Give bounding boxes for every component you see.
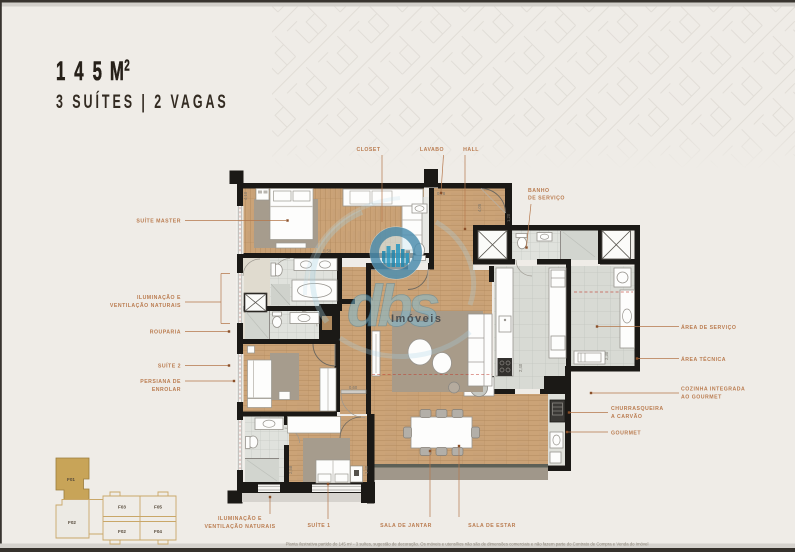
svg-text:PERSIANA DE: PERSIANA DE (140, 379, 181, 385)
svg-text:F05: F05 (154, 505, 162, 510)
svg-text:F01: F01 (67, 477, 75, 482)
svg-text:M: M (110, 56, 124, 86)
svg-text:AO GOURMET: AO GOURMET (681, 395, 722, 401)
svg-text:VENTILAÇÃO NATURAIS: VENTILAÇÃO NATURAIS (204, 523, 275, 530)
svg-text:2,40: 2,40 (518, 363, 523, 372)
svg-text:145: 145 (56, 56, 111, 86)
svg-text:CLOSET: CLOSET (356, 147, 380, 153)
svg-text:SUÍTE MASTER: SUÍTE MASTER (136, 217, 181, 225)
svg-text:VENTILAÇÃO NATURAIS: VENTILAÇÃO NATURAIS (110, 302, 181, 309)
svg-text:SALA DE JANTAR: SALA DE JANTAR (380, 523, 432, 529)
svg-text:4,10: 4,10 (243, 191, 248, 200)
svg-text:3 SUÍTES | 2 VAGAS: 3 SUÍTES | 2 VAGAS (56, 90, 229, 113)
svg-text:4,05: 4,05 (477, 203, 482, 212)
svg-text:1,20: 1,20 (506, 213, 511, 222)
svg-text:F02: F02 (68, 520, 76, 525)
svg-text:SALA DE ESTAR: SALA DE ESTAR (468, 523, 516, 529)
svg-text:HALL: HALL (463, 147, 479, 153)
svg-text:Imóveis: Imóveis (391, 313, 442, 325)
svg-text:dbs: dbs (347, 274, 439, 339)
svg-text:F04: F04 (154, 529, 162, 534)
svg-text:ÁREA TÉCNICA: ÁREA TÉCNICA (681, 355, 726, 363)
svg-text:ENROLAR: ENROLAR (152, 387, 181, 393)
svg-text:2: 2 (124, 56, 130, 74)
svg-text:ILUMINAÇÃO E: ILUMINAÇÃO E (137, 294, 181, 301)
svg-text:CHURRASQUEIRA: CHURRASQUEIRA (611, 406, 664, 412)
svg-text:F03: F03 (118, 505, 126, 510)
svg-text:GOURMET: GOURMET (611, 431, 641, 437)
svg-text:SUÍTE 2: SUÍTE 2 (158, 362, 181, 370)
svg-text:2,58: 2,58 (288, 465, 293, 474)
svg-text:ÁREA DE SERVIÇO: ÁREA DE SERVIÇO (681, 324, 736, 331)
svg-text:F02: F02 (118, 529, 126, 534)
svg-text:COZINHA INTEGRADA: COZINHA INTEGRADA (681, 387, 745, 393)
svg-text:ROUPARIA: ROUPARIA (150, 330, 181, 336)
svg-text:SUÍTE 1: SUÍTE 1 (307, 521, 330, 529)
svg-text:LAVABO: LAVABO (420, 147, 444, 153)
svg-text:ILUMINAÇÃO E: ILUMINAÇÃO E (218, 515, 262, 522)
svg-text:0,60: 0,60 (349, 385, 358, 390)
svg-text:0,50: 0,50 (323, 249, 332, 254)
svg-text:BANHO: BANHO (528, 188, 550, 194)
svg-text:A CARVÃO: A CARVÃO (611, 413, 642, 420)
svg-text:DE SERVIÇO: DE SERVIÇO (528, 196, 565, 202)
svg-text:2,30: 2,30 (604, 351, 609, 360)
svg-text:Planta ilustrativa partido do: Planta ilustrativa partido do 145 m² - 3… (286, 542, 649, 547)
svg-text:1,40: 1,40 (364, 465, 369, 474)
